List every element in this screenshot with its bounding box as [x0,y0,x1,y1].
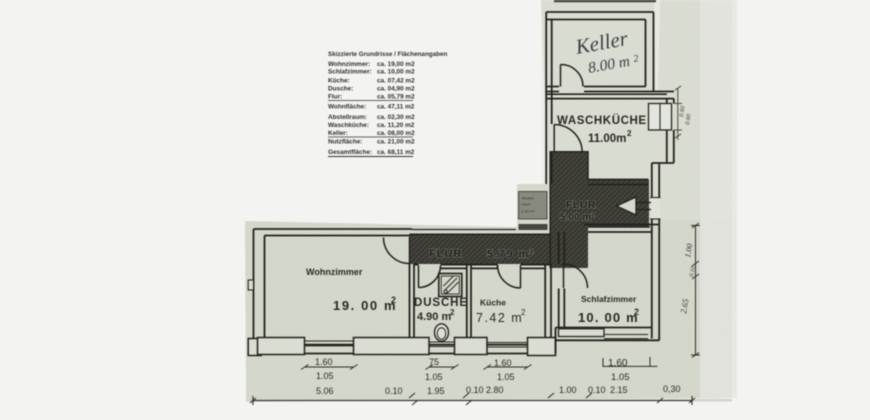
svg-text:Wohnzimmer: Wohnzimmer [306,267,363,277]
svg-text:Nutzfläche:: Nutzfläche: [328,139,362,146]
svg-text:Küche:: Küche: [328,78,350,85]
svg-text:FLUR: FLUR [429,248,462,260]
svg-text:1.05: 1.05 [497,372,515,382]
svg-text:Keller:: Keller: [328,130,348,137]
svg-text:FLUR: FLUR [566,199,596,211]
svg-text:2: 2 [450,308,455,317]
svg-text:1.05: 1.05 [611,372,630,383]
svg-text:75: 75 [429,357,439,367]
svg-text:ca. 02,30 m2: ca. 02,30 m2 [377,114,415,121]
svg-text:2: 2 [634,307,639,317]
svg-text:Skizzierte Grundrisse / Fläche: Skizzierte Grundrisse / Flächenangaben [328,51,447,58]
svg-text:Waschküche:: Waschküche: [328,122,369,129]
svg-text:7.42 m: 7.42 m [476,311,523,325]
svg-text:Abstellraum:: Abstellraum: [328,114,367,121]
svg-text:10. 00 m: 10. 00 m [578,310,639,325]
svg-text:2: 2 [391,295,396,305]
svg-text:ca. 05,79 m2: ca. 05,79 m2 [377,94,415,101]
svg-text:0,30: 0,30 [663,384,681,394]
svg-text:ca. 19,00 m2: ca. 19,00 m2 [377,61,415,68]
svg-text:ca. 04,90 m2: ca. 04,90 m2 [377,86,415,93]
svg-text:DUSCHE: DUSCHE [414,297,468,309]
svg-text:5.00 m²: 5.00 m² [560,212,595,223]
svg-text:Flur:: Flur: [328,94,342,101]
svg-text:raum: raum [522,202,532,207]
svg-text:Küche: Küche [480,298,506,308]
svg-text:Abstell: Abstell [522,196,534,201]
svg-text:0.10 2.80: 0.10 2.80 [466,385,504,395]
svg-text:1.60: 1.60 [608,358,628,369]
svg-text:2: 2 [627,129,632,138]
svg-text:1.05: 1.05 [316,371,334,381]
svg-text:ca. 08,00 m2: ca. 08,00 m2 [377,130,415,137]
svg-text:5.79 m²: 5.79 m² [487,249,535,261]
svg-text:ca. 68,11 m2: ca. 68,11 m2 [377,149,415,156]
svg-text:1.05: 1.05 [425,372,443,382]
svg-text:ca. 07,42 m2: ca. 07,42 m2 [377,78,415,85]
svg-text:0.10: 0.10 [385,386,403,396]
svg-text:Dusche:: Dusche: [328,86,353,93]
svg-text:5.06: 5.06 [316,386,334,396]
svg-text:1.00: 1.00 [559,385,577,395]
svg-text:WASCHKÜCHE: WASCHKÜCHE [557,114,647,127]
svg-text:Gesamtfläche:: Gesamtfläche: [328,149,372,156]
svg-text:2: 2 [521,308,526,317]
svg-text:1.95: 1.95 [427,386,445,396]
svg-text:1.60: 1.60 [315,357,333,367]
svg-text:19. 00 m: 19. 00 m [333,298,397,313]
svg-text:ca. 21,00 m2: ca. 21,00 m2 [377,139,415,146]
svg-text:ca. 47,11 m2: ca. 47,11 m2 [377,104,415,111]
svg-text:11.00m: 11.00m [588,133,626,145]
svg-text:2,30 m²: 2,30 m² [521,209,535,214]
svg-text:2.15: 2.15 [610,385,628,395]
svg-text:Schlafzimmer:: Schlafzimmer: [328,69,372,76]
svg-text:1.60: 1.60 [494,358,512,368]
svg-text:Wohnzimmer:: Wohnzimmer: [328,61,370,68]
svg-text:4.90 m: 4.90 m [417,311,451,323]
svg-text:Schlafzimmer: Schlafzimmer [581,294,637,304]
svg-text:ca. 10,00 m2: ca. 10,00 m2 [377,69,415,76]
svg-text:ca. 11,20 m2: ca. 11,20 m2 [377,122,415,129]
svg-text:Wohnfläche:: Wohnfläche: [328,104,366,111]
